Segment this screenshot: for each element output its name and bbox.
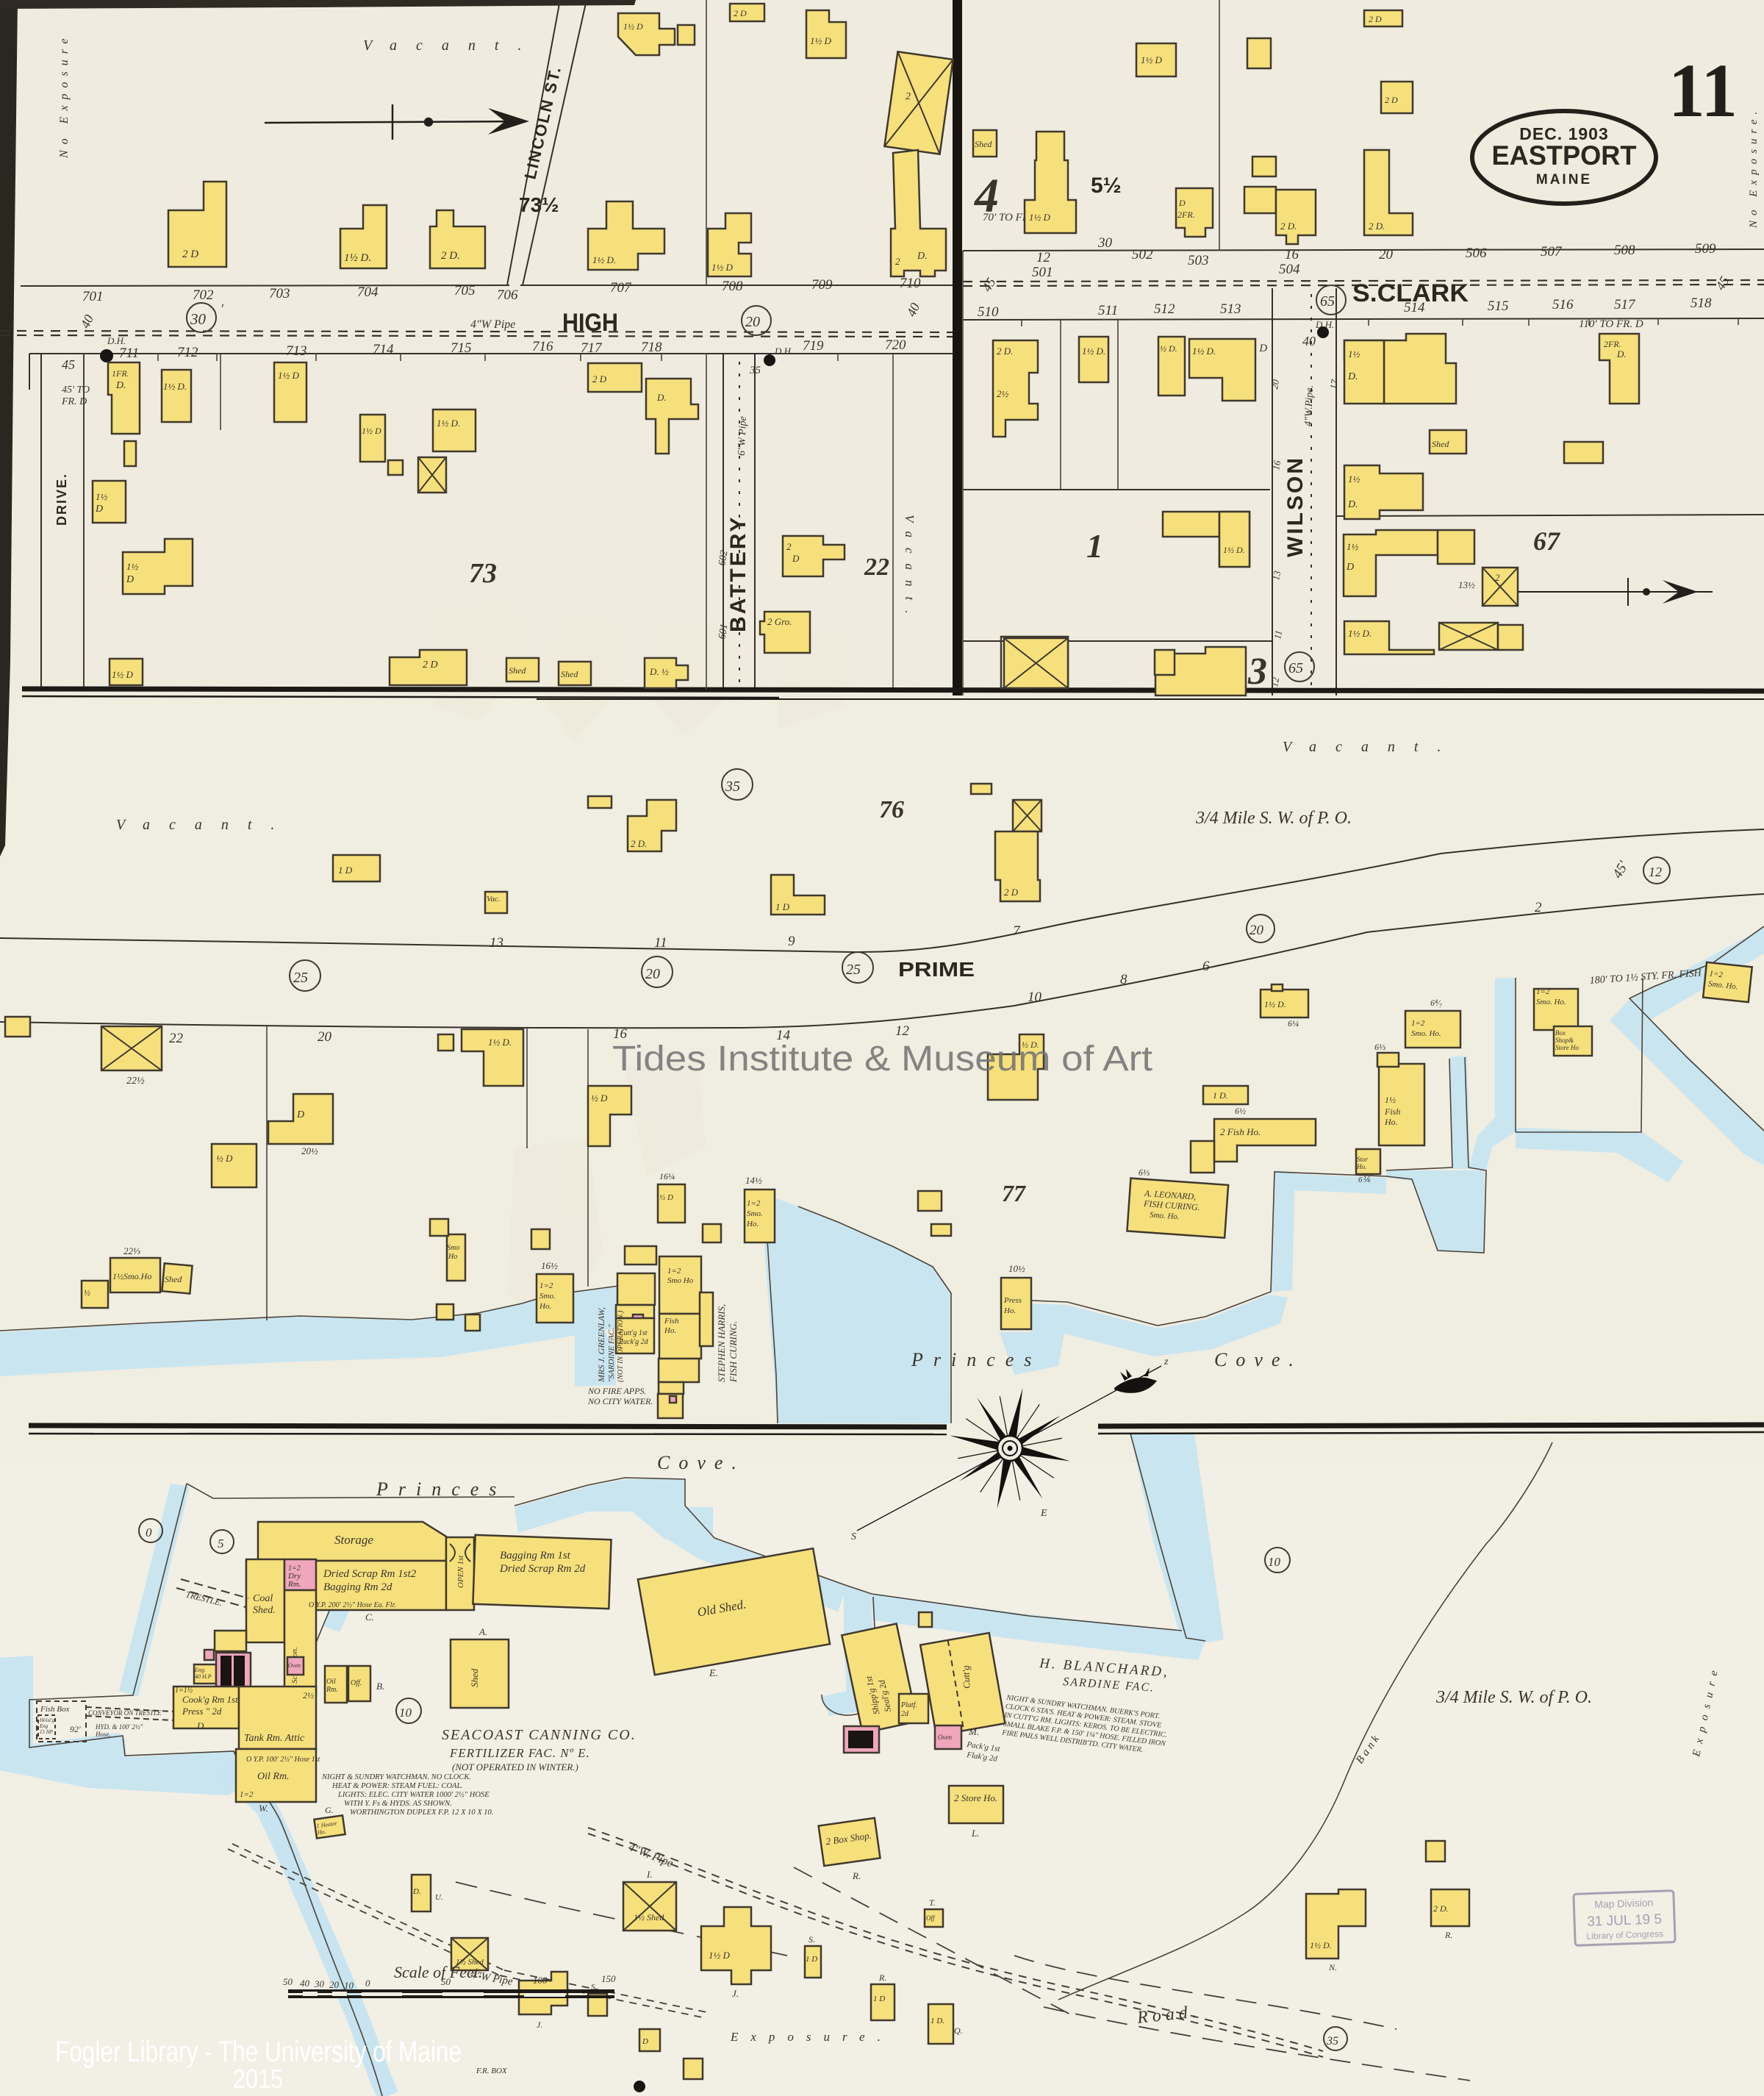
svg-text:77: 77 <box>1002 1180 1027 1206</box>
svg-text:HEAT & POWER: STEAM FUEL: COAL: HEAT & POWER: STEAM FUEL: COAL. <box>331 1782 463 1790</box>
svg-text:Vac.: Vac. <box>487 895 501 904</box>
svg-text:Smo.: Smo. <box>539 1292 556 1301</box>
svg-text:PRIME: PRIME <box>898 958 975 981</box>
svg-text:NIGHT & SUNDRY WATCHMAN. NO CL: NIGHT & SUNDRY WATCHMAN. NO CLOCK. <box>321 1773 471 1781</box>
svg-text:N.: N. <box>1328 1962 1337 1972</box>
svg-text:FERTILIZER FAC. Nº E.: FERTILIZER FAC. Nº E. <box>449 1746 590 1760</box>
svg-text:Tank Rm. Attic: Tank Rm. Attic <box>244 1733 305 1744</box>
svg-text:0: 0 <box>365 1978 370 1989</box>
svg-text:508: 508 <box>1614 243 1635 258</box>
svg-text:R.: R. <box>852 1870 861 1881</box>
svg-text:Princes: Princes <box>376 1478 506 1500</box>
svg-text:Cook'g Rm 1st: Cook'g Rm 1st <box>182 1694 238 1705</box>
svg-text:2 D: 2 D <box>182 248 198 260</box>
svg-text:1½ D: 1½ D <box>278 370 300 381</box>
svg-text:Platf.: Platf. <box>900 1701 917 1709</box>
svg-text:1½ D.: 1½ D. <box>1348 628 1372 639</box>
svg-text:1 D: 1 D <box>775 901 790 912</box>
svg-text:DRIVE.: DRIVE. <box>54 473 69 526</box>
svg-text:0: 0 <box>146 1525 152 1539</box>
svg-text:715: 715 <box>451 340 472 356</box>
svg-text:11: 11 <box>1668 49 1738 133</box>
svg-text:50: 50 <box>441 1976 451 1987</box>
svg-text:R.: R. <box>878 1972 886 1983</box>
svg-text:Box: Box <box>1555 1029 1566 1037</box>
svg-text:710: 710 <box>900 276 921 291</box>
svg-text:(NOT OPERATED IN WINTER.): (NOT OPERATED IN WINTER.) <box>452 1761 578 1773</box>
svg-text:1=1½: 1=1½ <box>175 1687 193 1695</box>
svg-text:20: 20 <box>1249 923 1264 938</box>
svg-text:31 JUL 19 5: 31 JUL 19 5 <box>1587 1911 1662 1930</box>
svg-text:I.: I. <box>646 1869 653 1880</box>
svg-text:Ho: Ho <box>448 1253 457 1261</box>
svg-text:No Exposure.: No Exposure. <box>1748 107 1760 229</box>
svg-text:504: 504 <box>1279 262 1300 277</box>
svg-text:13: 13 <box>490 935 503 951</box>
svg-text:No Exposure: No Exposure <box>58 32 71 159</box>
svg-text:100: 100 <box>533 1975 548 1986</box>
svg-text:5: 5 <box>218 1537 224 1550</box>
svg-text:1½ D.: 1½ D. <box>1310 1940 1332 1950</box>
svg-text:1FR.: 1FR. <box>112 368 129 379</box>
svg-text:45' TO: 45' TO <box>62 384 90 396</box>
svg-text:1=2: 1=2 <box>1411 1019 1425 1028</box>
svg-text:16¼: 16¼ <box>659 1171 675 1181</box>
svg-text:D.: D. <box>196 1720 207 1731</box>
svg-text:OPEN 1st: OPEN 1st <box>456 1555 465 1588</box>
svg-text:1: 1 <box>1086 527 1103 565</box>
svg-text:92': 92' <box>70 1724 81 1734</box>
svg-text:703: 703 <box>269 286 290 301</box>
svg-text:1 D.: 1 D. <box>1213 1090 1228 1101</box>
svg-text:1½ D: 1½ D <box>362 426 381 436</box>
svg-text:511: 511 <box>1098 303 1118 318</box>
svg-text:L.: L. <box>971 1828 979 1839</box>
svg-text:Oven: Oven <box>288 1662 301 1669</box>
svg-text:514: 514 <box>1404 300 1425 315</box>
svg-text:J.: J. <box>732 1988 739 1999</box>
svg-text:717: 717 <box>581 340 603 356</box>
svg-text:704: 704 <box>357 285 379 300</box>
svg-text:"SARDINE FAC.": "SARDINE FAC." <box>607 1324 616 1382</box>
svg-text:Bagging Rm 2d: Bagging Rm 2d <box>323 1581 392 1593</box>
svg-text:1½: 1½ <box>1347 541 1359 552</box>
svg-text:30: 30 <box>190 310 207 328</box>
svg-text:S.: S. <box>808 1934 815 1945</box>
svg-text:4"W.Pipe.: 4"W.Pipe. <box>1303 385 1316 426</box>
svg-text:35: 35 <box>725 779 740 795</box>
svg-text:z: z <box>1164 1356 1169 1367</box>
svg-text:13½: 13½ <box>1458 579 1475 590</box>
svg-text:WORTHINGTON DUPLEX F.P. 12 X 1: WORTHINGTON DUPLEX F.P. 12 X 10 X 10. <box>350 1809 493 1817</box>
svg-text:708: 708 <box>722 279 743 294</box>
svg-text:D. ½: D. ½ <box>649 666 669 677</box>
svg-text:40: 40 <box>1302 334 1316 348</box>
svg-text:Ho.: Ho. <box>539 1302 551 1311</box>
svg-text:O Y.P. 200' 2½" Hose Ea. Flr.: O Y.P. 200' 2½" Hose Ea. Flr. <box>309 1601 396 1609</box>
svg-text:25: 25 <box>846 962 861 978</box>
svg-text:2 D: 2 D <box>423 659 438 670</box>
svg-text:718: 718 <box>641 340 662 355</box>
svg-text:719: 719 <box>803 338 824 354</box>
svg-text:67: 67 <box>1533 526 1561 556</box>
svg-text:1½: 1½ <box>1385 1095 1396 1105</box>
svg-text:Cove.: Cove. <box>1214 1349 1302 1370</box>
svg-text:Smo: Smo <box>447 1244 459 1252</box>
svg-text:8: 8 <box>1120 972 1127 987</box>
svg-text:NO FIRE APPS.: NO FIRE APPS. <box>587 1386 646 1396</box>
svg-text:Exposure.: Exposure. <box>730 2030 893 2044</box>
svg-text:Oil: Oil <box>326 1678 336 1686</box>
svg-text:1½ D.: 1½ D. <box>1192 346 1216 357</box>
svg-text:2: 2 <box>895 256 900 267</box>
svg-text:45: 45 <box>62 357 75 372</box>
svg-text:Hose.: Hose. <box>95 1731 111 1738</box>
svg-text:1½ D: 1½ D <box>711 262 734 273</box>
svg-text:Dried Scrap Rm 1st2: Dried Scrap Rm 1st2 <box>323 1568 417 1580</box>
svg-text:503: 503 <box>1188 253 1209 268</box>
svg-text:Shed: Shed <box>561 669 578 679</box>
svg-text:D: D <box>1346 562 1354 573</box>
svg-text:1½ D: 1½ D <box>1141 54 1163 65</box>
svg-text:2 D: 2 D <box>1385 95 1398 105</box>
svg-text:Smo Ho: Smo Ho <box>667 1276 694 1285</box>
svg-text:Oven: Oven <box>938 1734 952 1741</box>
svg-text:½ D.: ½ D. <box>1160 343 1177 354</box>
svg-text:2 D.: 2 D. <box>1369 221 1385 232</box>
svg-text:Ho.: Ho. <box>664 1326 676 1335</box>
svg-text:1½ D.: 1½ D. <box>1223 545 1245 555</box>
svg-text:1½ D: 1½ D <box>1029 212 1051 223</box>
svg-text:10: 10 <box>1028 990 1042 1005</box>
svg-text:16½: 16½ <box>541 1260 558 1271</box>
svg-text:Hoist'g: Hoist'g <box>39 1717 55 1723</box>
svg-text:LIGHTS: ELEC. CITY WATER 1000': LIGHTS: ELEC. CITY WATER 1000' 2½" HOSE <box>337 1791 490 1799</box>
svg-text:Fish Box: Fish Box <box>40 1705 70 1714</box>
svg-text:515: 515 <box>1488 298 1509 314</box>
svg-text:12: 12 <box>895 1023 910 1039</box>
svg-text:2 Fish Ho.: 2 Fish Ho. <box>1220 1126 1261 1137</box>
svg-text:22: 22 <box>169 1031 184 1046</box>
svg-text:1=2: 1=2 <box>747 1199 761 1208</box>
svg-text:30: 30 <box>314 1978 325 1989</box>
svg-text:Coal: Coal <box>253 1593 273 1604</box>
svg-text:510: 510 <box>978 304 999 320</box>
svg-text:2FR.: 2FR. <box>1604 339 1621 349</box>
svg-text:Press: Press <box>1003 1296 1022 1305</box>
svg-text:502: 502 <box>1132 247 1153 262</box>
svg-text:2 Store Ho.: 2 Store Ho. <box>954 1792 997 1803</box>
svg-text:6½: 6½ <box>1235 1106 1246 1116</box>
svg-text:MAINE: MAINE <box>1536 172 1592 187</box>
svg-text:Off: Off <box>926 1914 936 1922</box>
svg-text:76: 76 <box>879 796 904 823</box>
svg-text:512: 512 <box>1154 301 1175 317</box>
svg-text:Eng: Eng <box>39 1723 49 1729</box>
svg-text:1 D: 1 D <box>338 865 353 876</box>
svg-text:20: 20 <box>745 314 760 330</box>
svg-text:4"W Pipe: 4"W Pipe <box>470 318 515 331</box>
svg-text:1½Smo.Ho: 1½Smo.Ho <box>112 1271 151 1281</box>
svg-text:1½: 1½ <box>96 491 108 502</box>
svg-text:Store Ho: Store Ho <box>1555 1044 1579 1051</box>
svg-text:D.: D. <box>1347 499 1358 510</box>
svg-text:2 D: 2 D <box>592 373 607 384</box>
svg-text:11: 11 <box>1272 629 1284 640</box>
svg-text:501: 501 <box>1032 265 1053 280</box>
svg-text:D: D <box>1178 198 1186 208</box>
svg-text:D: D <box>642 2037 648 2046</box>
svg-text:Press ″ 2d: Press ″ 2d <box>182 1706 222 1717</box>
svg-text:2 D.: 2 D. <box>1433 1903 1449 1914</box>
svg-text:Dried Scrap Rm 2d: Dried Scrap Rm 2d <box>499 1563 586 1575</box>
svg-text:1=2: 1=2 <box>539 1281 553 1290</box>
svg-text:20: 20 <box>645 966 660 982</box>
svg-text:2FR.: 2FR. <box>1177 210 1195 220</box>
svg-text:Shed: Shed <box>1432 439 1449 449</box>
svg-text:Ho.: Ho. <box>316 1828 326 1836</box>
svg-text:HIGH: HIGH <box>562 309 618 337</box>
svg-text:1=2: 1=2 <box>1536 987 1550 996</box>
svg-text:707: 707 <box>610 280 632 296</box>
svg-text:1 D: 1 D <box>873 1995 885 2003</box>
svg-text:3/4 Mile S. W. of P. O.: 3/4 Mile S. W. of P. O. <box>1435 1688 1592 1707</box>
svg-text:3/4 Mile S. W. of P. O.: 3/4 Mile S. W. of P. O. <box>1195 809 1352 828</box>
svg-text:D.: D. <box>1347 371 1358 382</box>
svg-text:702: 702 <box>193 287 214 303</box>
svg-text:S: S <box>851 1531 856 1542</box>
svg-text:Cutt'g: Cutt'g <box>960 1664 972 1689</box>
svg-text:22½: 22½ <box>126 1076 145 1087</box>
svg-text:MRS J. GREENLAW,: MRS J. GREENLAW, <box>596 1307 606 1383</box>
svg-text:M.: M. <box>968 1726 979 1737</box>
svg-text:2: 2 <box>786 541 792 552</box>
svg-text:705: 705 <box>454 283 476 298</box>
svg-text:Princes: Princes <box>911 1349 1041 1370</box>
svg-text:WILSON: WILSON <box>1283 456 1308 557</box>
svg-text:B.: B. <box>376 1681 384 1692</box>
svg-text:20: 20 <box>1379 247 1394 262</box>
svg-text:10: 10 <box>399 1706 412 1720</box>
svg-text:3: 3 <box>1247 651 1267 693</box>
svg-text:6⅓: 6⅓ <box>1374 1042 1385 1052</box>
svg-text:10½: 10½ <box>1008 1263 1025 1274</box>
svg-text:2 D.: 2 D. <box>997 346 1013 357</box>
svg-text:Storage: Storage <box>334 1533 373 1547</box>
svg-text:½ D: ½ D <box>591 1092 608 1104</box>
svg-text:10: 10 <box>344 1980 354 1991</box>
svg-text:2 D: 2 D <box>734 8 747 18</box>
svg-text:Map Division: Map Division <box>1594 1897 1654 1911</box>
svg-text:1½ Shed.: 1½ Shed. <box>634 1912 666 1922</box>
svg-text:Shed: Shed <box>165 1274 182 1284</box>
svg-text:D: D <box>126 574 134 585</box>
svg-text:Ho.: Ho. <box>1356 1163 1366 1170</box>
svg-text:Shed: Shed <box>469 1668 480 1687</box>
svg-text:1½ D: 1½ D <box>709 1950 731 1961</box>
svg-text:EASTPORT: EASTPORT <box>1492 140 1637 171</box>
svg-text:9: 9 <box>788 934 795 949</box>
svg-text:1 D.: 1 D. <box>931 2017 944 2025</box>
svg-text:40: 40 <box>300 1978 310 1989</box>
svg-text:Ho.: Ho. <box>1003 1306 1016 1315</box>
svg-text:16: 16 <box>1285 247 1299 262</box>
svg-text:506: 506 <box>1466 246 1487 261</box>
svg-text:14½: 14½ <box>745 1175 762 1186</box>
svg-text:20½: 20½ <box>301 1145 318 1156</box>
svg-text:HYD. & 100' 2½": HYD. & 100' 2½" <box>95 1723 143 1731</box>
svg-text:10: 10 <box>1268 1555 1281 1569</box>
svg-text:½ D: ½ D <box>216 1153 233 1164</box>
svg-text:E.: E. <box>709 1668 718 1679</box>
svg-text:NO CITY WATER.: NO CITY WATER. <box>587 1396 653 1406</box>
svg-text:Bagging Rm 1st: Bagging Rm 1st <box>500 1550 571 1562</box>
svg-text:(NOT IN OPERATION.): (NOT IN OPERATION.) <box>617 1310 625 1382</box>
svg-text:518: 518 <box>1690 296 1712 311</box>
svg-text:1½ D.: 1½ D. <box>437 418 460 429</box>
svg-text:FISH CURING.: FISH CURING. <box>728 1321 739 1383</box>
svg-text:Off.: Off. <box>351 1679 362 1687</box>
svg-text:Fish: Fish <box>1384 1106 1400 1117</box>
svg-text:2 D: 2 D <box>1369 14 1382 24</box>
svg-text:2: 2 <box>1495 572 1500 583</box>
svg-text:Eng.: Eng. <box>194 1667 206 1673</box>
svg-text:2 Gro.: 2 Gro. <box>767 616 792 627</box>
svg-text:2½: 2½ <box>303 1690 314 1700</box>
svg-text:Ho.: Ho. <box>746 1220 759 1228</box>
svg-text:1=2: 1=2 <box>667 1267 681 1276</box>
svg-text:516: 516 <box>1552 297 1574 312</box>
svg-text:Ho.: Ho. <box>1384 1117 1398 1127</box>
svg-text:713: 713 <box>286 343 307 359</box>
svg-text:Vacant.: Vacant. <box>903 515 917 624</box>
svg-text:Tides Institute & Museum of Ar: Tides Institute & Museum of Art <box>612 1040 1152 1079</box>
svg-text:720: 720 <box>885 337 906 353</box>
svg-text:D.: D. <box>1616 348 1627 360</box>
svg-text:22: 22 <box>864 554 889 581</box>
svg-text:A.: A. <box>478 1626 487 1637</box>
svg-text:Q.: Q. <box>954 2025 963 2036</box>
svg-text:1½ D.: 1½ D. <box>1264 999 1286 1009</box>
svg-text:2½: 2½ <box>997 388 1009 399</box>
svg-text:Smo. Ho.: Smo. Ho. <box>1536 998 1566 1006</box>
svg-text:35: 35 <box>749 365 761 376</box>
svg-text:Vacant.: Vacant. <box>1283 739 1460 755</box>
svg-text:73: 73 <box>469 558 497 589</box>
svg-text:2d: 2d <box>901 1710 909 1718</box>
svg-text:CONVEYOR ON TRESTLE: CONVEYOR ON TRESTLE <box>88 1709 162 1717</box>
svg-text:50: 50 <box>283 1976 293 1987</box>
svg-text:E: E <box>1040 1508 1047 1519</box>
svg-text:65: 65 <box>1288 660 1303 676</box>
svg-text:12: 12 <box>1036 250 1051 265</box>
svg-text:1=2: 1=2 <box>1709 969 1724 979</box>
svg-text:D.H.: D.H. <box>107 335 126 346</box>
svg-text:2: 2 <box>1535 900 1542 915</box>
svg-text:Scale of Feet.: Scale of Feet. <box>394 1963 482 1981</box>
svg-text:Smo.: Smo. <box>747 1209 763 1218</box>
svg-text:Shed: Shed <box>509 665 526 676</box>
svg-text:15 HP: 15 HP <box>40 1729 54 1735</box>
svg-text:73½: 73½ <box>519 193 559 216</box>
svg-text:1½ D: 1½ D <box>112 669 134 680</box>
svg-text:509: 509 <box>1695 241 1716 257</box>
svg-text:R.: R. <box>1444 1930 1452 1940</box>
svg-text:6⅓: 6⅓ <box>1139 1167 1150 1178</box>
svg-text:110' TO FR. D: 110' TO FR. D <box>1579 318 1643 330</box>
svg-text:Rm.: Rm. <box>326 1686 338 1694</box>
svg-text:513: 513 <box>1220 301 1241 317</box>
svg-text:716: 716 <box>532 339 553 354</box>
svg-text:706: 706 <box>497 287 518 303</box>
svg-text:D: D <box>95 504 103 515</box>
svg-text:2015: 2015 <box>233 2064 283 2094</box>
svg-text:35: 35 <box>1326 2035 1338 2047</box>
svg-text:25: 25 <box>293 970 308 986</box>
svg-text:6⅙: 6⅙ <box>1358 1176 1372 1184</box>
svg-text:22⅓: 22⅓ <box>123 1245 140 1256</box>
svg-text:2 D.: 2 D. <box>441 250 460 262</box>
svg-text:40 H.P: 40 H.P <box>195 1673 212 1680</box>
svg-text:714: 714 <box>373 342 394 357</box>
svg-text:U.: U. <box>435 1893 443 1902</box>
svg-text:J.: J. <box>537 2020 542 2030</box>
svg-text:517: 517 <box>1614 297 1636 312</box>
svg-text:1½: 1½ <box>1348 473 1360 484</box>
svg-text:2 D: 2 D <box>1004 887 1019 898</box>
svg-text:FR. D: FR. D <box>61 396 87 407</box>
svg-text:507: 507 <box>1541 244 1563 260</box>
svg-text:1½ D.: 1½ D. <box>592 254 616 265</box>
svg-text:20: 20 <box>318 1029 332 1045</box>
svg-text:Cove.: Cove. <box>657 1452 745 1473</box>
svg-text:Shed: Shed <box>975 139 992 149</box>
svg-text:6¼: 6¼ <box>1288 1018 1299 1029</box>
svg-text:SEACOAST CANNING CO.: SEACOAST CANNING CO. <box>442 1727 637 1743</box>
svg-text:5½: 5½ <box>1091 174 1122 198</box>
svg-text:D: D <box>792 553 800 564</box>
svg-text:709: 709 <box>811 277 833 293</box>
svg-text:150: 150 <box>601 1973 616 1984</box>
svg-text:65: 65 <box>1320 293 1335 310</box>
svg-text:D.: D. <box>656 392 667 403</box>
svg-text:6"W Pipe: 6"W Pipe <box>736 416 749 456</box>
svg-text:O Y.P. 100' 2½" Hose 1st: O Y.P. 100' 2½" Hose 1st <box>246 1756 320 1764</box>
svg-text:1½: 1½ <box>1348 348 1360 360</box>
svg-text:D: D <box>296 1109 304 1120</box>
svg-text:Fish: Fish <box>664 1317 679 1326</box>
svg-text:1½ D.: 1½ D. <box>488 1037 512 1048</box>
svg-text:WITH Y. Fs & HYDS. AS SHOWN.: WITH Y. Fs & HYDS. AS SHOWN. <box>344 1800 452 1808</box>
svg-text:Shop&: Shop& <box>1555 1037 1574 1044</box>
svg-text:Stor: Stor <box>1357 1156 1369 1163</box>
svg-text:1=2: 1=2 <box>240 1790 254 1799</box>
svg-text:½ D: ½ D <box>659 1193 673 1202</box>
svg-text:T.: T. <box>929 1898 936 1908</box>
svg-text:Shed.: Shed. <box>253 1605 276 1616</box>
svg-text:C.: C. <box>365 1612 374 1623</box>
svg-text:20: 20 <box>329 1979 340 1990</box>
svg-text:W.: W. <box>259 1803 268 1814</box>
svg-text:1½ D: 1½ D <box>810 35 832 46</box>
svg-text:Vacant.: Vacant. <box>363 37 540 54</box>
svg-text:D.: D. <box>917 251 928 262</box>
svg-text:1 D: 1 D <box>806 1955 817 1964</box>
svg-text:30: 30 <box>1097 235 1113 251</box>
svg-text:G.: G. <box>325 1805 334 1815</box>
svg-text:2 D.: 2 D. <box>1280 221 1297 232</box>
svg-text:701: 701 <box>82 289 104 304</box>
